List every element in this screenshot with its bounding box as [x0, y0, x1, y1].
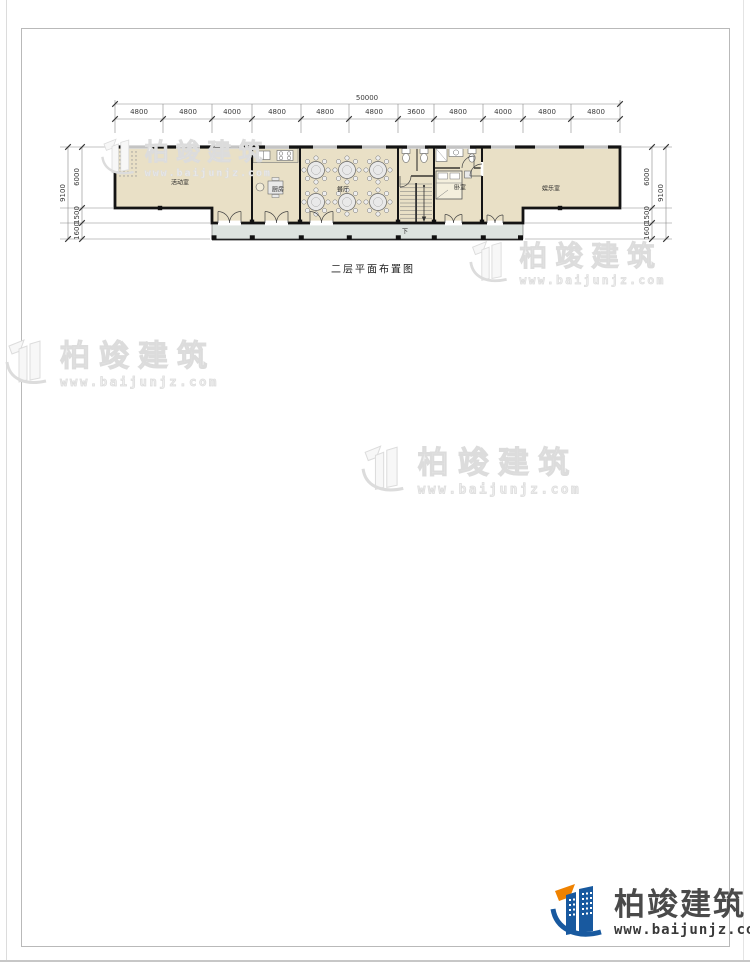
brand-logo-name: 柏竣建筑	[614, 888, 750, 922]
dim-top-segment-0: 4800	[130, 108, 148, 116]
brand-logo-icon	[549, 881, 609, 945]
dim-top-segment-8: 4000	[494, 108, 512, 116]
dim-top-segment-2: 4000	[223, 108, 241, 116]
room-label-dining: 餐厅	[337, 185, 349, 194]
dim-right-segment-0: 6000	[643, 168, 651, 186]
dim-top-segment-5: 4800	[365, 108, 383, 116]
stair-down-label: 下	[402, 227, 408, 236]
dim-right-total: 9100	[657, 184, 665, 202]
dim-top-segment-9: 4800	[538, 108, 556, 116]
dim-top-segment-4: 4800	[316, 108, 334, 116]
dim-top-segment-1: 4800	[179, 108, 197, 116]
floor-plan-drawing	[0, 0, 750, 971]
room-label-kitchen: 厨房	[272, 185, 284, 194]
dim-top-segment-10: 4800	[587, 108, 605, 116]
drawing-title: 二层平面布置图	[331, 261, 415, 276]
room-label-recreation: 娱乐室	[542, 184, 560, 193]
brand-logo: 柏竣建筑 www.baijunjz.com	[549, 881, 750, 945]
dim-left-total: 9100	[59, 184, 67, 202]
room-label-activity: 活动室	[171, 178, 189, 187]
dim-top-segment-6: 3600	[407, 108, 425, 116]
dim-left-segment-2: 1600	[73, 222, 81, 240]
windows	[127, 145, 608, 149]
dim-top-total: 50000	[356, 94, 378, 102]
dim-top-segment-7: 4800	[449, 108, 467, 116]
room-label-bedroom: 卧室	[454, 183, 466, 192]
dim-left-segment-0: 6000	[73, 168, 81, 186]
dim-right-segment-2: 1600	[643, 222, 651, 240]
dim-top-segment-3: 4800	[268, 108, 286, 116]
brand-logo-url: www.baijunjz.com	[614, 922, 750, 938]
balcony	[212, 223, 524, 240]
